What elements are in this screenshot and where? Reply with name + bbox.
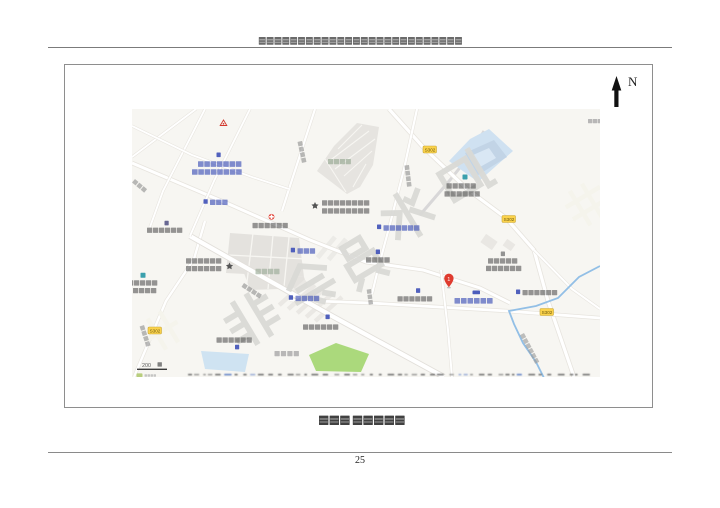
svg-text:1: 1 <box>447 277 450 283</box>
svg-text:S302: S302 <box>425 147 436 152</box>
svg-text:S302: S302 <box>504 217 515 222</box>
svg-text:200: 200 <box>142 363 151 369</box>
svg-text:S302: S302 <box>542 310 553 315</box>
svg-text:N: N <box>628 74 638 89</box>
svg-text:S302: S302 <box>150 328 161 333</box>
